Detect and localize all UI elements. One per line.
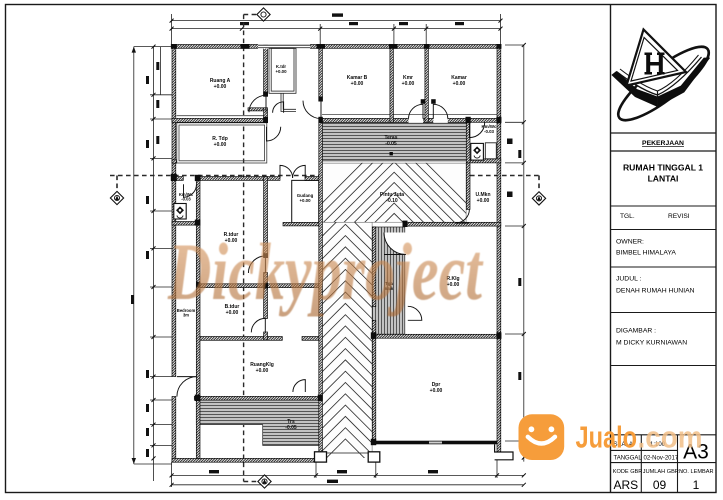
svg-text:+0.00: +0.00 <box>402 81 415 87</box>
svg-text:REVISI: REVISI <box>668 213 690 220</box>
svg-text:-0.10: -0.10 <box>386 198 398 204</box>
svg-text:PEKERJAAN: PEKERJAAN <box>642 140 684 147</box>
svg-text:+0.00: +0.00 <box>214 84 227 90</box>
svg-text:+0.00: +0.00 <box>453 81 466 87</box>
svg-text:RUMAH TINGGAL 1: RUMAH TINGGAL 1 <box>623 163 703 173</box>
svg-text:+0.00: +0.00 <box>275 69 287 74</box>
svg-text:-0.05: -0.05 <box>385 141 397 147</box>
svg-text:Dickyproject: Dickyproject <box>167 226 483 317</box>
svg-text:LANTAI: LANTAI <box>648 174 679 184</box>
svg-text:NO. LEMBAR :: NO. LEMBAR : <box>679 469 717 475</box>
svg-text:09: 09 <box>653 478 667 492</box>
svg-text:+0.00: +0.00 <box>299 198 311 203</box>
svg-text:DENAH RUMAH HUNIAN: DENAH RUMAH HUNIAN <box>616 288 695 295</box>
svg-text:+0.00: +0.00 <box>256 368 269 374</box>
svg-text:M DICKY KURNIAWAN: M DICKY KURNIAWAN <box>616 340 687 347</box>
svg-text:KODE GBR :: KODE GBR : <box>613 469 646 475</box>
svg-text:02-Nov-2017: 02-Nov-2017 <box>644 456 679 462</box>
svg-text:-0.03: -0.03 <box>484 129 495 134</box>
svg-text:JUMLAH GBR :: JUMLAH GBR : <box>643 469 683 475</box>
svg-text:ARS: ARS <box>613 478 638 492</box>
svg-text:BIMBEL HIMALAYA: BIMBEL HIMALAYA <box>616 250 676 257</box>
svg-text:+0.00: +0.00 <box>477 198 490 204</box>
svg-text:JUDUL :: JUDUL : <box>616 276 642 283</box>
svg-text:.com: .com <box>638 420 703 455</box>
svg-text:DIGAMBAR :: DIGAMBAR : <box>616 328 656 335</box>
svg-text:1: 1 <box>693 478 700 492</box>
svg-text:+0.00: +0.00 <box>430 388 443 394</box>
svg-text:OWNER:: OWNER: <box>616 239 644 246</box>
svg-text:TANGGAL: TANGGAL <box>614 456 643 462</box>
svg-text:-0.05: -0.05 <box>285 425 297 431</box>
svg-text:Jualo: Jualo <box>576 420 638 455</box>
svg-text:+0.00: +0.00 <box>351 81 364 87</box>
svg-text:-0.03: -0.03 <box>181 197 191 202</box>
svg-text:+0.00: +0.00 <box>214 142 227 148</box>
svg-text:TGL.: TGL. <box>620 213 635 220</box>
